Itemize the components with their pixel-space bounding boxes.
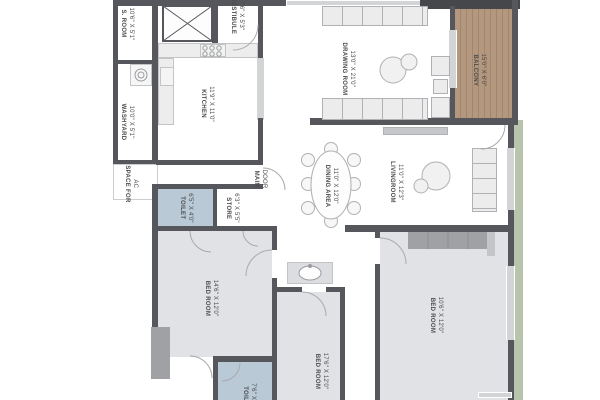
room-label-dining-area: DINING AREA11'0" X 12'0" bbox=[324, 165, 338, 208]
room-label-toilet-1: TOILET6'5" X 4'0" bbox=[179, 193, 193, 222]
room-dimensions: 10'6" X 12'0" bbox=[437, 297, 443, 334]
room-name: WASHYARD bbox=[120, 104, 126, 141]
room-dimensions: 6'5" X 4'0" bbox=[187, 193, 193, 222]
room-dimensions: 13'0" X 21'0" bbox=[349, 51, 355, 88]
room-dimensions: 11'0" X 12'3" bbox=[397, 164, 403, 200]
room-name: MAIN bbox=[253, 171, 259, 188]
room-dimensions: 15'0" X 6'0" bbox=[480, 54, 486, 87]
room-label-main-door: MAINDOOR bbox=[253, 170, 267, 189]
room-label-livingroom: LIVINGROOM11'0" X 12'3" bbox=[389, 161, 403, 203]
lounge-chair bbox=[414, 162, 450, 193]
room-name: TOILET bbox=[179, 196, 185, 219]
room-label-store: STORE6'3" X 5'5" bbox=[225, 193, 239, 222]
room-label-s-room: S. ROOM10'6" X 5'1" bbox=[120, 8, 134, 41]
room-label-space-for-ac: SPACE FORAC bbox=[124, 165, 138, 202]
room-label-kitchen: KITCHEN11'9" X 11'0" bbox=[200, 86, 214, 122]
room-name: DINING AREA bbox=[324, 165, 330, 208]
room-dimensions: 11'0" X 12'0" bbox=[332, 168, 338, 204]
room-label-bed-room-1: BED ROOM14'6" X 12'0" bbox=[204, 280, 218, 317]
room-label-vestibule: VESTIBULE7'6" X 5'3" bbox=[230, 0, 244, 34]
room-name: S. ROOM bbox=[120, 10, 126, 38]
room-dimensions: 17'6" X 12'0" bbox=[322, 353, 328, 390]
room-dimensions: 10'6" X 5'1" bbox=[128, 8, 134, 41]
room-name: DRAWING ROOM bbox=[341, 43, 347, 96]
floor-plan: S. ROOM10'6" X 5'1"WASHYARD10'0" X 5'1"S… bbox=[0, 0, 600, 400]
room-label-washyard: WASHYARD10'0" X 5'1" bbox=[120, 104, 134, 141]
room-name: SPACE FOR bbox=[124, 165, 130, 202]
lift-shaft bbox=[163, 6, 212, 41]
room-name: BED ROOM bbox=[429, 297, 435, 332]
room-name: BED ROOM bbox=[204, 280, 210, 315]
washing-machine-drum bbox=[135, 69, 147, 81]
room-dimensions: 7'6" X 5'3" bbox=[238, 1, 244, 30]
stove-burners bbox=[203, 46, 221, 56]
room-name: KITCHEN bbox=[200, 90, 206, 119]
room-name: BALCONY bbox=[472, 54, 478, 86]
room-dimensions: 6'3" X 5'5" bbox=[233, 193, 239, 222]
room-name: VESTIBULE bbox=[230, 0, 236, 34]
room-dimensions: DOOR bbox=[261, 170, 267, 189]
room-name: BED ROOM bbox=[314, 353, 320, 388]
room-dimensions: 7'6" X 5'5" bbox=[250, 383, 256, 400]
wardrobe-lines bbox=[428, 232, 468, 249]
room-label-balcony: BALCONY15'0" X 6'0" bbox=[472, 54, 486, 87]
room-name: TOILET bbox=[242, 386, 248, 400]
coffee-tables bbox=[380, 54, 417, 83]
room-label-bed-room-2: BED ROOM17'6" X 12'0" bbox=[314, 353, 328, 390]
room-label-drawing-room: DRAWING ROOM13'0" X 21'0" bbox=[341, 43, 355, 96]
room-name: LIVINGROOM bbox=[389, 161, 395, 203]
room-name: STORE bbox=[225, 197, 231, 219]
room-dimensions: 11'9" X 11'0" bbox=[208, 86, 214, 122]
room-dimensions: AC bbox=[132, 180, 138, 189]
wash-basin bbox=[299, 265, 321, 281]
room-dimensions: 14'6" X 12'0" bbox=[212, 280, 218, 317]
room-label-toilet-2: TOILET7'6" X 5'5" bbox=[242, 383, 256, 400]
room-dimensions: 10'0" X 5'1" bbox=[128, 106, 134, 139]
room-label-bed-room-3: BED ROOM10'6" X 12'0" bbox=[429, 297, 443, 334]
